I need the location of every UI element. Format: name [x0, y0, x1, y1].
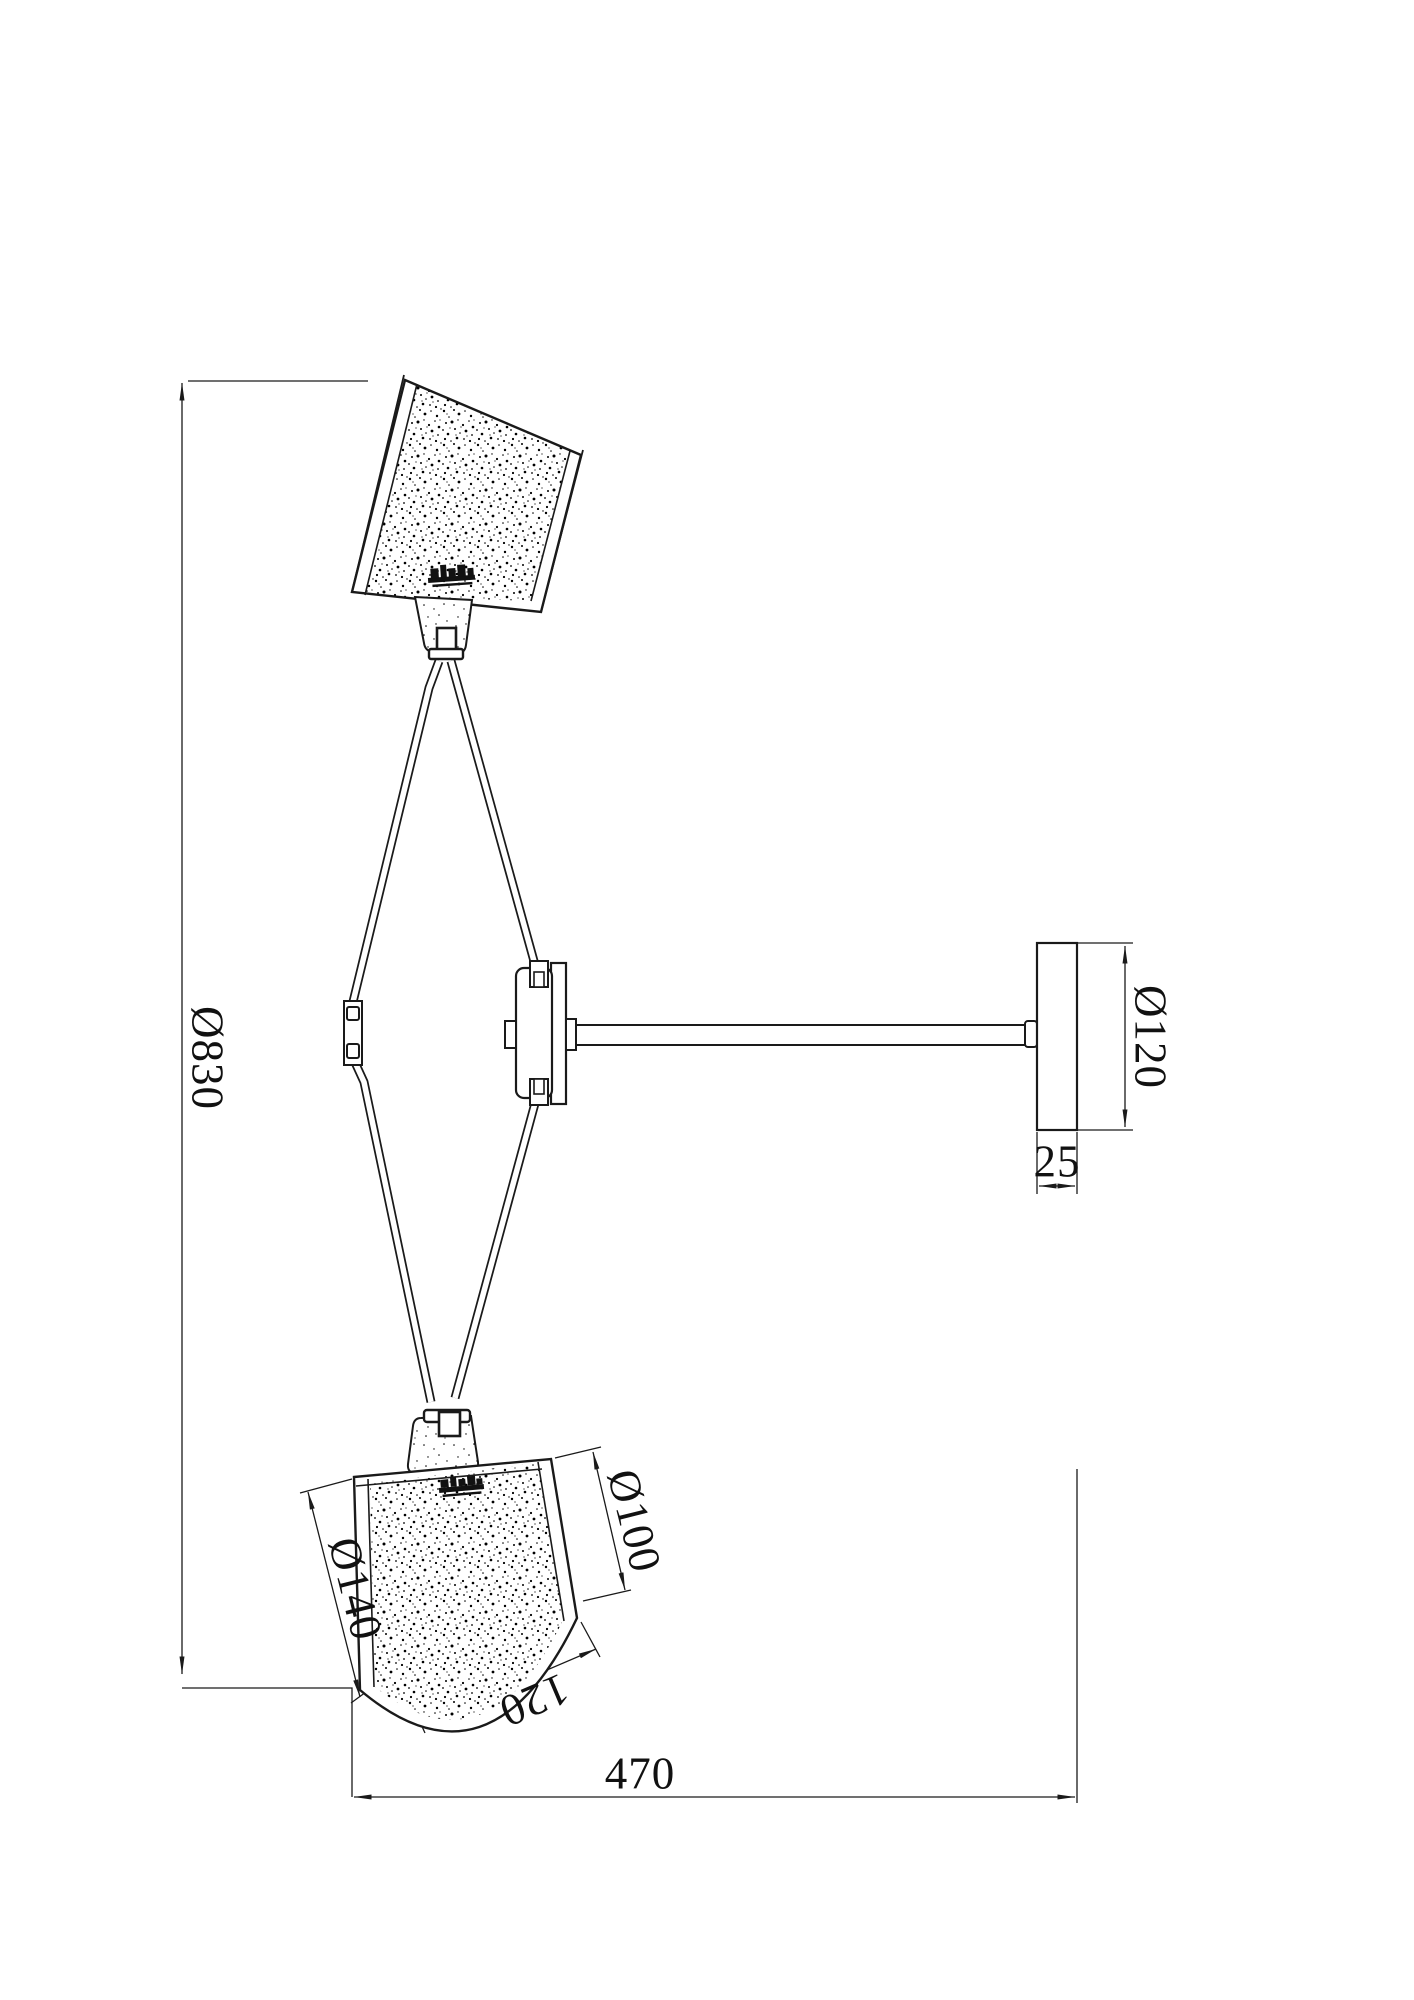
- backplate-thickness-label: 25: [1034, 1140, 1081, 1185]
- horizontal-arm: [566, 1019, 1037, 1050]
- backplate-diameter-label: Ø120: [1128, 985, 1173, 1089]
- dimension-lines: [182, 381, 1133, 1803]
- drawing-canvas: Ø830 Ø120 25 470 Ø140 Ø100 120: [0, 0, 1414, 2000]
- overall-height-label: Ø830: [185, 1006, 230, 1110]
- projection-width-label: 470: [605, 1752, 676, 1797]
- pivot-block: [505, 961, 566, 1105]
- top-shade: [352, 375, 583, 659]
- lamp-line-drawing: [0, 0, 1414, 2000]
- wall-backplate: [1037, 943, 1077, 1130]
- elbow-bracket: [344, 1001, 362, 1065]
